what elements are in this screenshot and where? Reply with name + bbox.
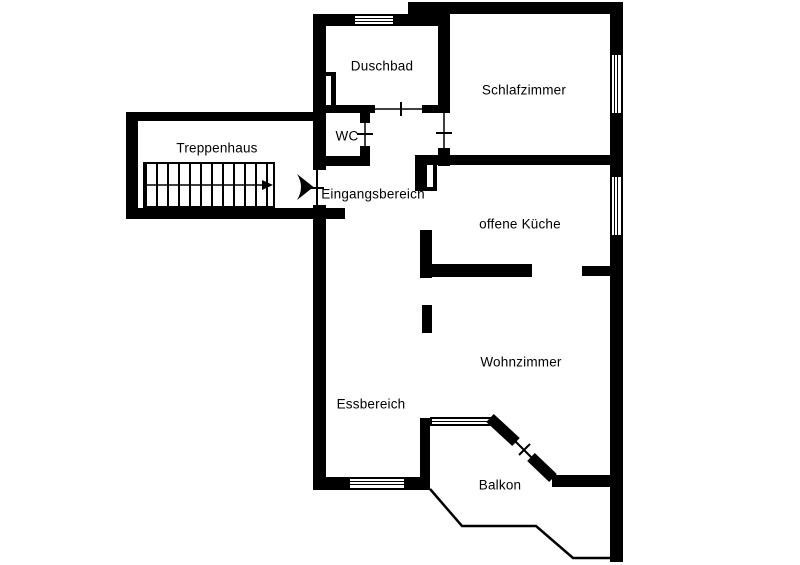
symbol-overlay: [0, 0, 800, 565]
stair-direction-arrow-icon: [147, 180, 273, 190]
room-label-wc: WC: [336, 129, 359, 144]
room-label-balkon: Balkon: [479, 478, 521, 493]
door-wc: [357, 123, 373, 146]
door-duschbad: [375, 102, 422, 116]
room-label-schlafzimmer: Schlafzimmer: [482, 83, 566, 98]
entrance-door-arrow-icon: [297, 166, 324, 205]
floor-plan: Treppenhaus Duschbad WC Eingangsbereich …: [0, 0, 800, 565]
room-label-eingangsbereich: Eingangsbereich: [321, 187, 425, 202]
room-label-offene-kueche: offene Küche: [479, 217, 561, 232]
room-label-wohnzimmer: Wohnzimmer: [480, 355, 561, 370]
room-label-duschbad: Duschbad: [351, 59, 413, 74]
door-schlafzimmer: [436, 113, 452, 148]
room-label-treppenhaus: Treppenhaus: [176, 141, 257, 156]
door-balkon: [514, 440, 534, 460]
room-label-essbereich: Essbereich: [337, 397, 406, 412]
balcony-outline: [430, 489, 611, 558]
